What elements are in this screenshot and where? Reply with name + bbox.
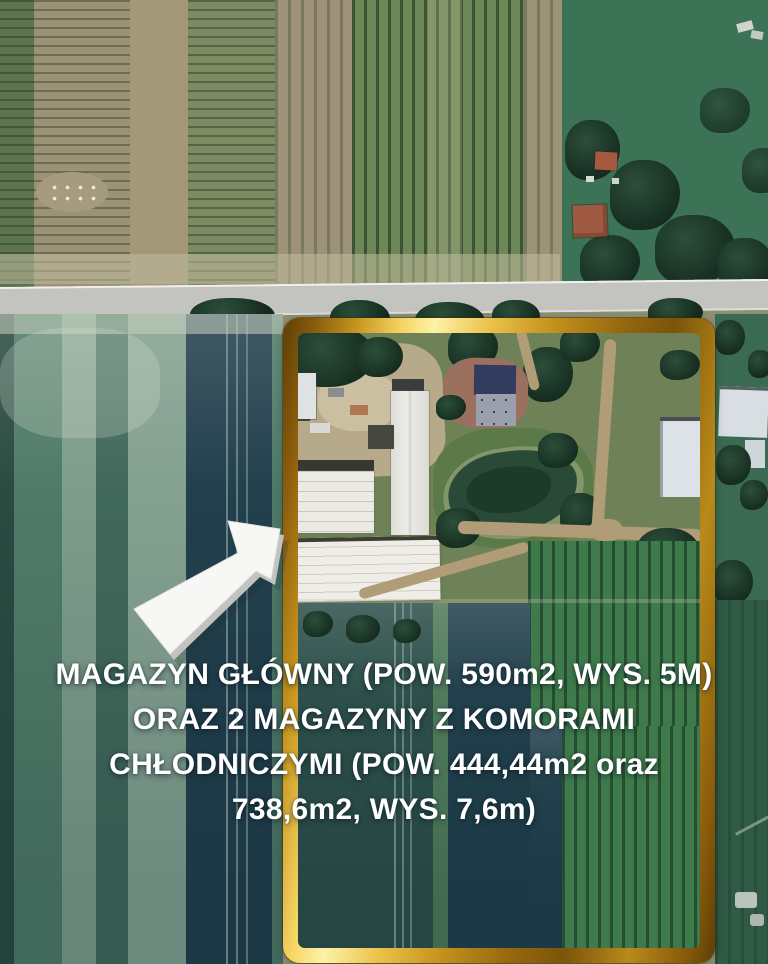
light-soil-column: [428, 0, 462, 288]
pale-wash: [0, 328, 160, 438]
bare-soil-strip: [275, 0, 352, 288]
white-building: [718, 386, 768, 438]
tree-cluster: [748, 350, 768, 378]
house-body: [476, 394, 516, 426]
listing-image: MAGAZYN GŁÓWNY (POW. 590m2, WYS. 5M) ORA…: [0, 0, 768, 964]
highlighted-property: [298, 333, 700, 948]
tractor-line: [226, 314, 228, 964]
tractor-line: [246, 314, 248, 964]
path-junction: [590, 519, 622, 541]
field-band: [272, 314, 283, 964]
small-shed: [612, 178, 619, 184]
east-warehouse: [660, 417, 700, 497]
tree-cluster: [740, 480, 768, 510]
caption-line: CHŁODNICZYMI (POW. 444,44m2 oraz: [0, 742, 768, 787]
tree-cluster: [660, 350, 700, 380]
crop-strip: [188, 0, 275, 288]
tree-cluster: [716, 445, 751, 485]
caption-line: MAGAZYN GŁÓWNY (POW. 590m2, WYS. 5M): [0, 652, 768, 697]
tree-cluster: [715, 560, 753, 605]
field-band-dark: [186, 314, 272, 964]
crop-strip: [524, 0, 562, 288]
caption-line: 738,6m2, WYS. 7,6m): [0, 787, 768, 832]
north-fields: [0, 0, 768, 288]
object-cluster-dots: [48, 182, 100, 204]
headland-strip: [0, 254, 560, 284]
vehicle: [328, 388, 344, 397]
bare-soil-strip: [130, 0, 188, 288]
farm-object: [750, 914, 764, 926]
farm-path: [591, 339, 616, 531]
caption: MAGAZYN GŁÓWNY (POW. 590m2, WYS. 5M) ORA…: [0, 652, 768, 832]
tree-cluster: [560, 333, 600, 362]
main-warehouse-vertical: [391, 391, 429, 535]
tractor-line: [236, 314, 238, 964]
warehouse-dark-roof-wing: [368, 425, 394, 449]
west-field: [0, 314, 283, 964]
red-roof-house: [595, 151, 618, 170]
house-roof: [474, 365, 517, 396]
small-shed: [586, 176, 594, 182]
vehicle: [310, 423, 330, 433]
crop-strip: [0, 0, 34, 288]
east-strip: [715, 314, 768, 964]
highlight-frame: [283, 318, 715, 963]
caption-line: ORAZ 2 MAGAZYNY Z KOMORAMI: [0, 697, 768, 742]
warehouse-west: [298, 471, 374, 533]
tree-cluster: [715, 320, 745, 355]
farm-object: [735, 892, 757, 908]
tree-cluster: [742, 148, 768, 193]
red-roof-house: [572, 204, 607, 237]
crop-strip: [34, 0, 130, 288]
vehicle: [350, 405, 368, 415]
white-shed: [298, 373, 316, 419]
